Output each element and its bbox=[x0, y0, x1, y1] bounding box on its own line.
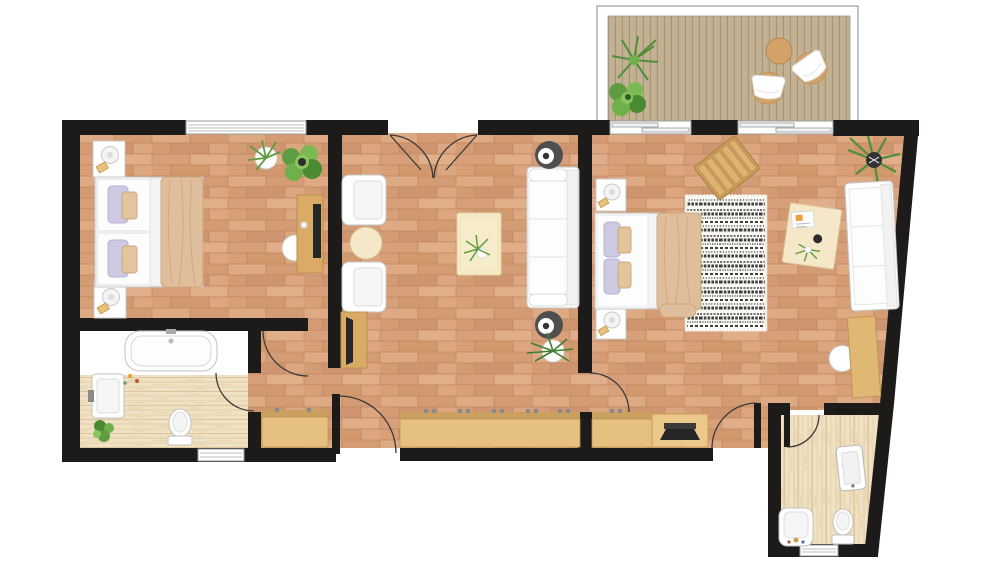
entrance-door-leaf bbox=[332, 394, 340, 454]
wall-top-e bbox=[833, 120, 919, 136]
washbasin bbox=[779, 508, 813, 546]
potted-plant bbox=[282, 145, 322, 181]
sofa bbox=[527, 167, 579, 308]
sofa bbox=[845, 181, 900, 311]
wall-divider-bedroom2 bbox=[578, 120, 592, 373]
wall-bottom-main bbox=[400, 448, 713, 461]
wall-bathroom1-right-upper bbox=[248, 331, 261, 373]
window-terrace-door-1 bbox=[610, 121, 691, 134]
tv-console bbox=[341, 312, 367, 368]
hallway bbox=[262, 408, 580, 447]
wall-bottom-mid bbox=[258, 448, 336, 462]
sideboard-with-laptop bbox=[592, 409, 708, 447]
window-bedroom1 bbox=[186, 121, 306, 134]
window-bathroom1 bbox=[198, 449, 244, 461]
coffee-table-with-plant bbox=[457, 213, 501, 275]
terrace bbox=[597, 6, 858, 127]
toilet bbox=[168, 409, 192, 445]
washbasin bbox=[88, 374, 124, 418]
writing-desk-with-papers bbox=[782, 203, 842, 270]
long-sideboard bbox=[400, 409, 580, 447]
hall-bathroom2-door-leaf bbox=[754, 403, 761, 448]
wall-top-b bbox=[306, 120, 388, 135]
window-terrace-door-2 bbox=[738, 121, 833, 134]
twin-bed bbox=[95, 177, 203, 287]
mirror-cabinet bbox=[836, 445, 866, 491]
bathtub bbox=[125, 329, 217, 371]
floor-plan-page bbox=[0, 0, 1000, 563]
wall-bathroom1-top bbox=[80, 318, 308, 331]
wall-left bbox=[62, 120, 80, 462]
wall-top-a bbox=[62, 120, 186, 135]
round-table bbox=[766, 38, 792, 64]
bathroom2-door-leaf bbox=[784, 415, 790, 447]
wall-top-d bbox=[691, 120, 738, 135]
nightstand-with-lamp bbox=[93, 141, 125, 177]
floor-plan-canvas bbox=[0, 0, 1000, 563]
round-side-table bbox=[350, 227, 382, 259]
wall-bathroom1-right-lower bbox=[248, 412, 261, 448]
double-bed bbox=[595, 213, 701, 317]
cabinet bbox=[262, 408, 328, 447]
window-bathroom2 bbox=[800, 545, 838, 556]
armchair bbox=[342, 175, 386, 225]
wall-bathroom2-top-a bbox=[768, 403, 790, 415]
floor-speaker bbox=[535, 311, 563, 339]
floor-speaker bbox=[535, 141, 563, 169]
toilet bbox=[832, 509, 854, 544]
nightstand-with-lamp bbox=[596, 179, 626, 211]
wall-divider-bedroom1 bbox=[328, 120, 342, 368]
armchair bbox=[342, 262, 386, 312]
nightstand-with-lamp bbox=[596, 306, 626, 339]
